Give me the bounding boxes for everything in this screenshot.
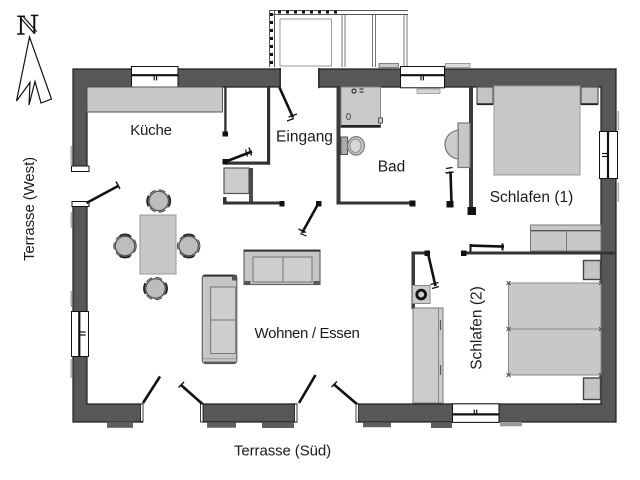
svg-text:Eingang: Eingang (276, 128, 333, 145)
svg-text:Schlafen (2): Schlafen (2) (469, 286, 486, 370)
svg-text:Bad: Bad (378, 159, 406, 176)
svg-text:Terrasse (Süd): Terrasse (Süd) (234, 443, 331, 460)
svg-text:Terrasse (West): Terrasse (West) (21, 157, 38, 261)
svg-text:Schlafen (1): Schlafen (1) (490, 189, 574, 206)
svg-text:Küche: Küche (130, 122, 172, 139)
svg-text:Wohnen / Essen: Wohnen / Essen (255, 325, 360, 342)
